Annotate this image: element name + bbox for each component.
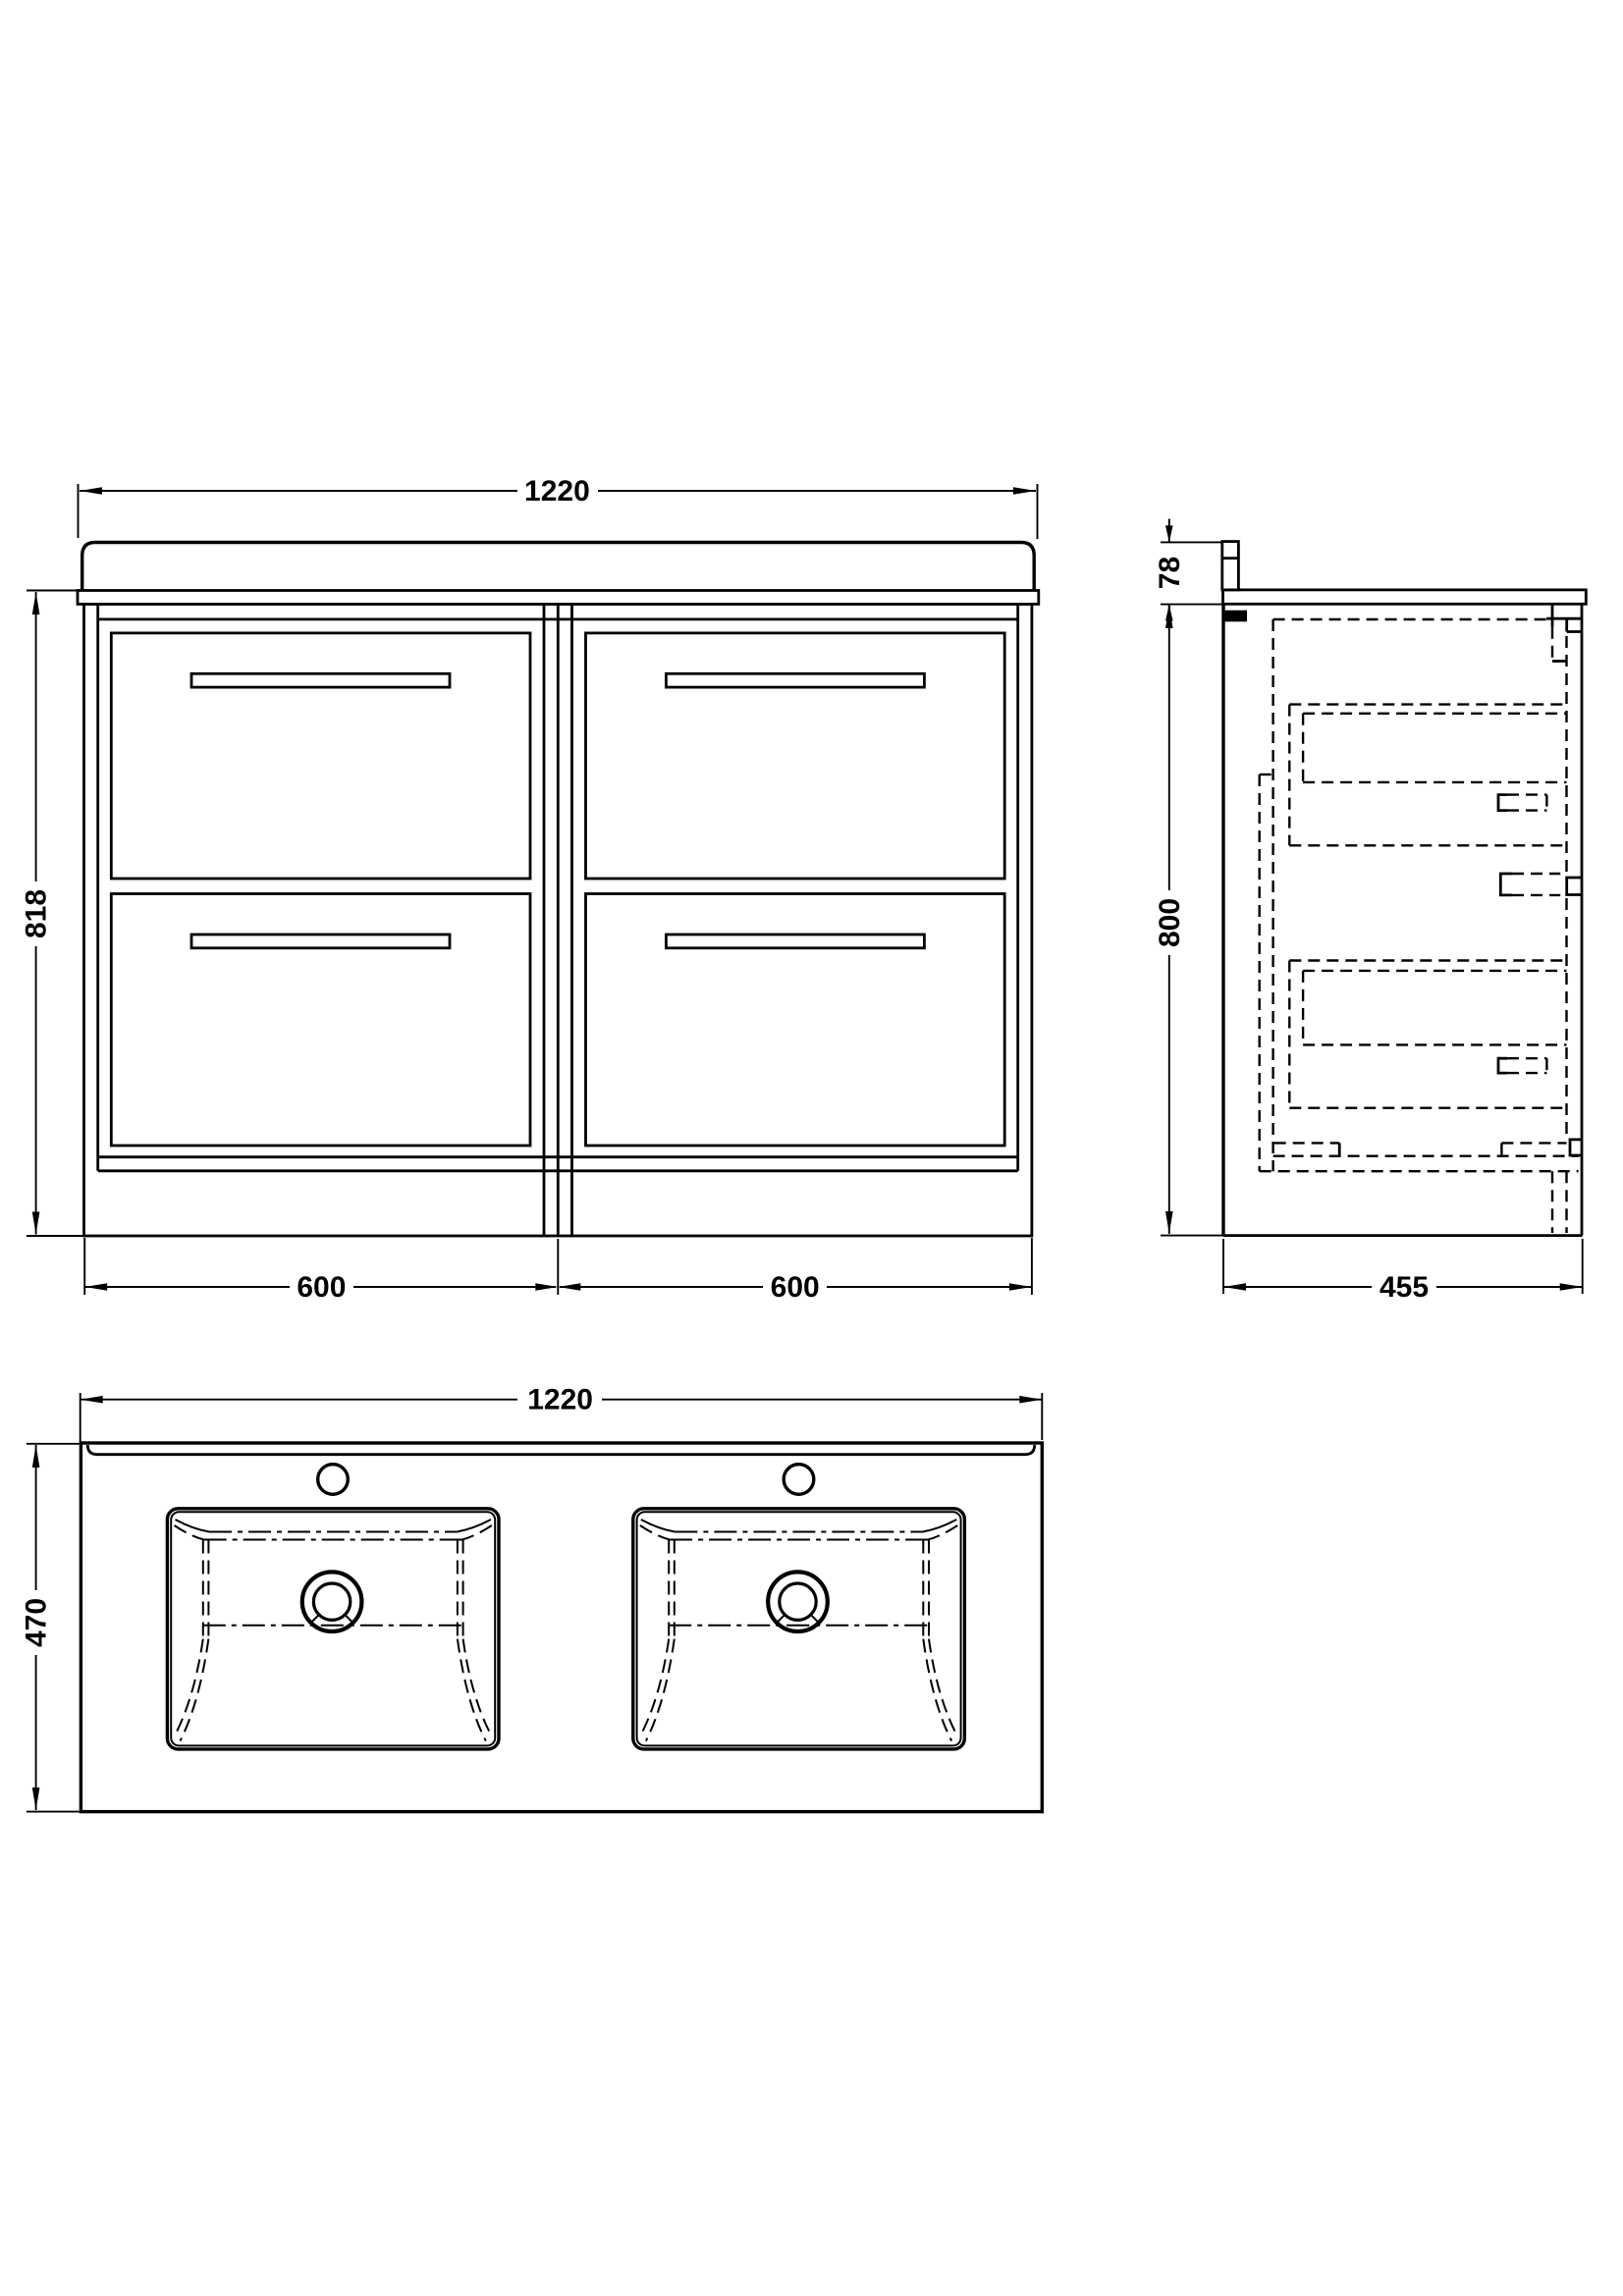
- svg-text:455: 455: [1380, 1271, 1429, 1304]
- svg-text:818: 818: [21, 889, 53, 938]
- svg-text:600: 600: [297, 1271, 346, 1304]
- svg-text:470: 470: [21, 1598, 53, 1647]
- svg-text:600: 600: [771, 1271, 820, 1304]
- svg-text:78: 78: [1154, 557, 1186, 589]
- svg-text:1220: 1220: [524, 475, 590, 507]
- svg-text:1220: 1220: [527, 1384, 593, 1416]
- svg-text:800: 800: [1154, 898, 1186, 947]
